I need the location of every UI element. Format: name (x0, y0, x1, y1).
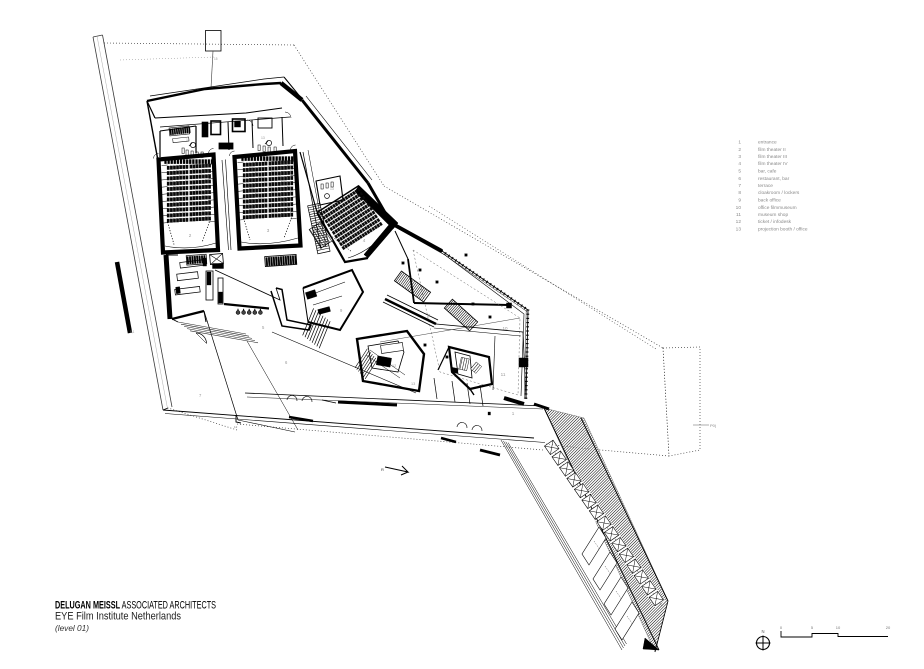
svg-text:7: 7 (738, 183, 741, 189)
svg-text:film theater III: film theater III (758, 154, 787, 160)
svg-text:6: 6 (738, 176, 741, 182)
svg-text:3: 3 (267, 228, 270, 233)
svg-text:museum shop: museum shop (758, 212, 788, 218)
svg-text:bar, cafe: bar, cafe (758, 169, 777, 175)
svg-text:back office: back office (758, 198, 781, 204)
svg-text:R: R (381, 467, 384, 472)
svg-text:2: 2 (189, 233, 192, 238)
svg-text:13: 13 (261, 136, 265, 140)
svg-text:EYE Film Institute Netherlands: EYE Film Institute Netherlands (55, 611, 181, 623)
svg-text:12: 12 (736, 219, 742, 225)
svg-text:1: 1 (738, 140, 741, 146)
svg-text:film theater II: film theater II (758, 147, 786, 153)
svg-text:12: 12 (234, 425, 238, 429)
svg-text:entrance: entrance (758, 140, 777, 146)
svg-text:N: N (761, 629, 764, 634)
svg-text:11: 11 (501, 372, 506, 377)
svg-text:film theater IV: film theater IV (758, 161, 788, 167)
svg-text:1: 1 (512, 411, 515, 416)
svg-text:restaurant, bar: restaurant, bar (758, 176, 790, 182)
svg-text:13: 13 (411, 382, 415, 386)
svg-text:10: 10 (736, 205, 742, 211)
svg-text:cloakroom / lockers: cloakroom / lockers (758, 190, 800, 196)
svg-text:terrace: terrace (758, 183, 773, 189)
svg-text:13: 13 (330, 187, 334, 191)
svg-text:5: 5 (738, 169, 741, 175)
svg-text:4: 4 (738, 161, 741, 167)
svg-text:0,1: 0,1 (130, 330, 135, 334)
svg-text:9: 9 (738, 198, 741, 204)
svg-text:20: 20 (886, 625, 891, 630)
svg-text:4: 4 (363, 238, 366, 243)
svg-text:11: 11 (736, 212, 741, 218)
svg-text:10: 10 (836, 625, 841, 630)
svg-text:15: 15 (214, 57, 218, 61)
svg-text:office filmmuseum: office filmmuseum (758, 205, 797, 211)
svg-text:(level 01): (level 01) (55, 624, 89, 633)
svg-text:13: 13 (736, 227, 742, 233)
svg-text:ticket / infodesk: ticket / infodesk (758, 219, 792, 225)
svg-text:P0): P0) (710, 423, 717, 428)
svg-text:3: 3 (738, 154, 741, 160)
svg-text:2: 2 (738, 147, 741, 153)
svg-text:13: 13 (186, 138, 190, 142)
svg-text:projection booth / office: projection booth / office (758, 227, 808, 233)
svg-text:8: 8 (738, 190, 741, 196)
